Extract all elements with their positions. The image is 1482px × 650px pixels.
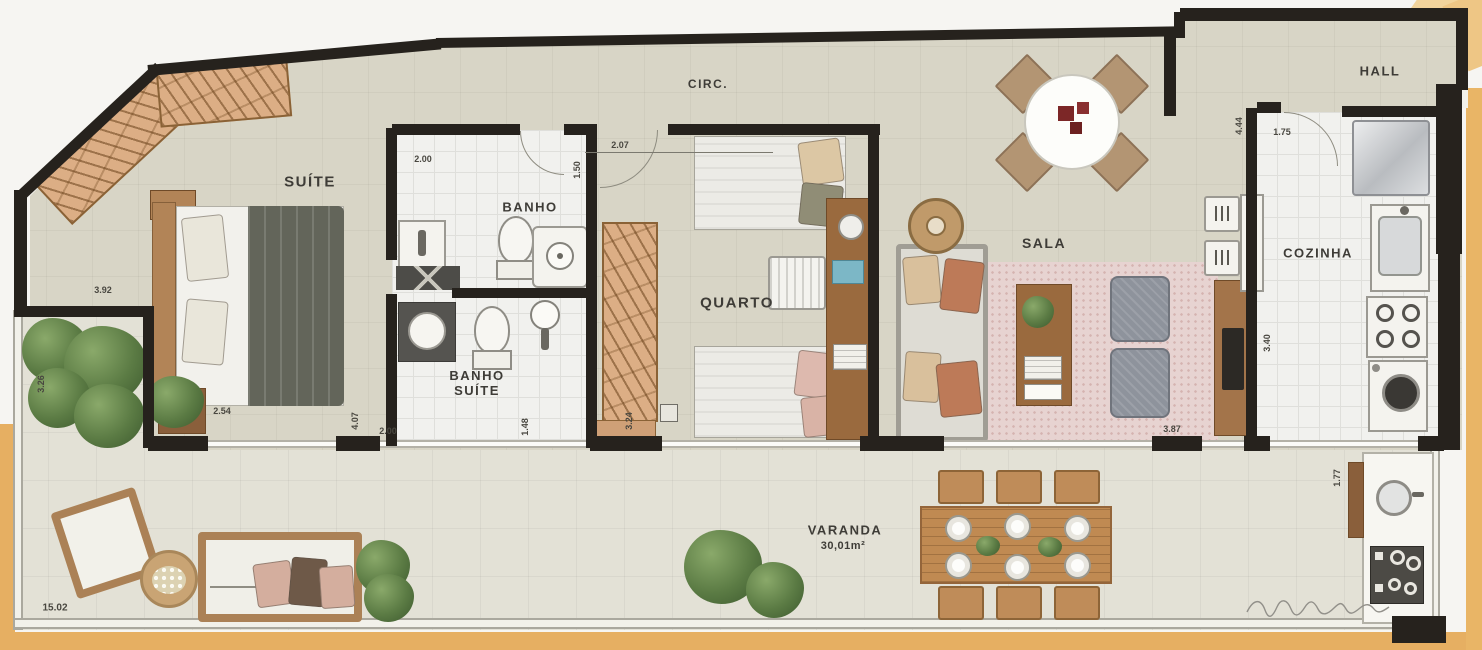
banho-suite-toilet-bowl	[474, 306, 510, 354]
architect-signature	[1242, 596, 1392, 618]
bath-divider-counter	[396, 266, 460, 290]
banho-sink-faucet-icon	[418, 230, 426, 256]
banho-suite-shower-head-icon	[530, 300, 560, 330]
banho-shower-drain	[557, 253, 563, 259]
wall-cozinha-top-a	[1257, 102, 1281, 113]
kitchen-sink-bowl	[1378, 216, 1422, 276]
label-cozinha: COZINHA	[1283, 246, 1353, 261]
dim-varanda-right-depth: 1.77	[1332, 469, 1342, 487]
wall-bath-left-lower	[386, 294, 397, 446]
grill-burner-4	[1404, 582, 1417, 595]
dining6-chair-4	[938, 586, 984, 620]
wall-left-vert-2	[143, 306, 154, 448]
wall-bath-divider	[452, 288, 596, 298]
varanda-pillow-3	[319, 565, 356, 609]
label-sala: SALA	[1022, 235, 1066, 251]
sala-pillow-4	[935, 360, 982, 418]
dining6-chair-6	[1054, 586, 1100, 620]
plate-3	[1064, 515, 1091, 542]
label-suite: SUÍTE	[284, 174, 336, 191]
dining6-chair-2	[996, 470, 1042, 504]
sala-table-books	[1024, 356, 1062, 380]
wall-bath-right	[586, 124, 597, 448]
sala-pillow-2	[939, 258, 985, 314]
label-circ: CIRC.	[688, 77, 728, 91]
dim-banho-suite-depth: 1.48	[520, 418, 530, 436]
circ-dim-line	[585, 152, 773, 153]
sala-table-shelf	[1024, 384, 1062, 400]
label-varanda-area: 30,01m²	[821, 540, 865, 552]
quarto-stool	[660, 404, 678, 422]
sala-tv	[1222, 328, 1244, 390]
dim-suite-depth: 4.07	[350, 412, 360, 430]
label-quarto: QUARTO	[700, 295, 774, 312]
dim-cozinha-depth: 3.40	[1262, 334, 1272, 352]
pouf-flowers	[152, 566, 186, 594]
dim-circ-width: 2.07	[611, 140, 629, 150]
washer-knob	[1372, 364, 1380, 372]
dim-cozinha-width: 1.75	[1273, 127, 1291, 137]
wall-left-vert	[14, 190, 27, 316]
dim-sala-width: 3.87	[1163, 424, 1181, 434]
dim-hall-cozinha-depth: 4.44	[1234, 117, 1244, 135]
suite-pillow-2	[181, 298, 228, 365]
wall-quarto-right	[868, 124, 879, 450]
quarto-wardrobe	[602, 222, 658, 422]
dining4-decor-1	[1058, 106, 1074, 121]
wall-bottom-2	[336, 436, 380, 451]
wall-bottom-5	[1152, 436, 1202, 451]
parapet-corner-block	[1392, 616, 1446, 643]
wall-cozinha-left	[1246, 108, 1257, 448]
wall-hall-top	[1180, 8, 1468, 21]
round-jute-mat-center	[926, 216, 946, 236]
sala-armchair-2	[1110, 348, 1170, 418]
grill-burner-2	[1406, 556, 1421, 571]
stove-burner-1	[1376, 304, 1394, 322]
sala-pillow-1	[902, 255, 942, 306]
dining6-chair-5	[996, 586, 1042, 620]
wall-right-upper	[1456, 8, 1468, 90]
dim-banho-width: 2.00	[414, 154, 432, 164]
dim-suite-bed-width: 2.54	[213, 406, 231, 416]
grill-sink-faucet-icon	[1412, 492, 1424, 497]
wall-left-horiz	[14, 306, 154, 317]
dim-suite-width: 3.92	[94, 285, 112, 295]
banho-toilet-bowl	[498, 216, 534, 264]
grill-burner-1	[1390, 550, 1405, 565]
grill-knob-2	[1375, 584, 1383, 592]
dim-banho-suite-width: 2.00	[379, 426, 397, 436]
sala-armchair-1	[1110, 276, 1170, 342]
dim-varanda-side-depth: 3.26	[36, 375, 46, 393]
plate-2	[1004, 513, 1031, 540]
ground-band-bottom	[0, 632, 1482, 650]
dim-varanda-length: 15.02	[42, 603, 67, 614]
banho-toilet-tank	[496, 260, 536, 280]
plate-4	[945, 552, 972, 579]
banho-suite-shower-handle	[541, 328, 549, 350]
plate-5	[1004, 554, 1031, 581]
suite-bed-blanket	[248, 206, 344, 406]
quarto-bed1-pillow-1	[797, 137, 845, 186]
dining6-chair-1	[938, 470, 984, 504]
quarto-desk-books	[833, 344, 867, 370]
floor-plan: SUÍTE BANHO BANHO SUÍTE CIRC. QUARTO SAL…	[0, 0, 1482, 650]
wall-bottom-7	[1418, 436, 1444, 451]
label-banho: BANHO	[502, 200, 557, 215]
dining4-decor-2	[1077, 102, 1089, 114]
kitchen-faucet-icon	[1400, 206, 1409, 215]
wall-bottom-1	[148, 436, 208, 451]
suite-pillow-1	[181, 214, 229, 282]
fridge	[1352, 120, 1430, 196]
stove	[1366, 296, 1428, 358]
stove-burner-2	[1402, 304, 1420, 322]
label-varanda: VARANDA	[808, 523, 883, 538]
banho-suite-toilet-tank	[472, 350, 512, 370]
plate-1	[945, 515, 972, 542]
washer-door	[1382, 374, 1420, 412]
wall-cozinha-top-b	[1342, 106, 1438, 117]
wall-banho-top-a	[392, 124, 520, 135]
wall-bottom-3	[590, 436, 662, 451]
stove-burner-3	[1376, 330, 1394, 348]
label-banho-suite: BANHO SUÍTE	[435, 369, 519, 399]
banho-suite-sink-basin	[408, 312, 446, 350]
dim-quarto-depth: 3.24	[624, 412, 634, 430]
quarto-ribbed-dresser	[768, 256, 826, 310]
quarto-desk-round-table	[838, 214, 864, 240]
wall-right-lower	[1438, 250, 1460, 450]
wall-bath-left-upper	[386, 128, 397, 260]
plate-6	[1064, 552, 1091, 579]
parapet-left	[13, 310, 23, 630]
grill-cutting-board	[1348, 462, 1364, 538]
stove-burner-4	[1402, 330, 1420, 348]
wall-quarto-top	[668, 124, 880, 135]
ground-band-right	[1466, 88, 1482, 650]
dim-banho-depth: 1.50	[572, 161, 582, 179]
quarto-desk-notebook	[832, 260, 864, 284]
grill-sink	[1376, 480, 1412, 516]
wall-hall-divider	[1164, 28, 1176, 116]
grill-knob-1	[1375, 552, 1383, 560]
wall-right-main	[1436, 84, 1462, 254]
hall-cabinet-2-vents-icon	[1215, 250, 1229, 265]
hall-cabinet-1-vents-icon	[1215, 206, 1229, 221]
dining4-decor-3	[1070, 122, 1082, 134]
label-hall: HALL	[1360, 64, 1401, 79]
dining6-chair-3	[1054, 470, 1100, 504]
grill-burner-3	[1388, 578, 1401, 591]
